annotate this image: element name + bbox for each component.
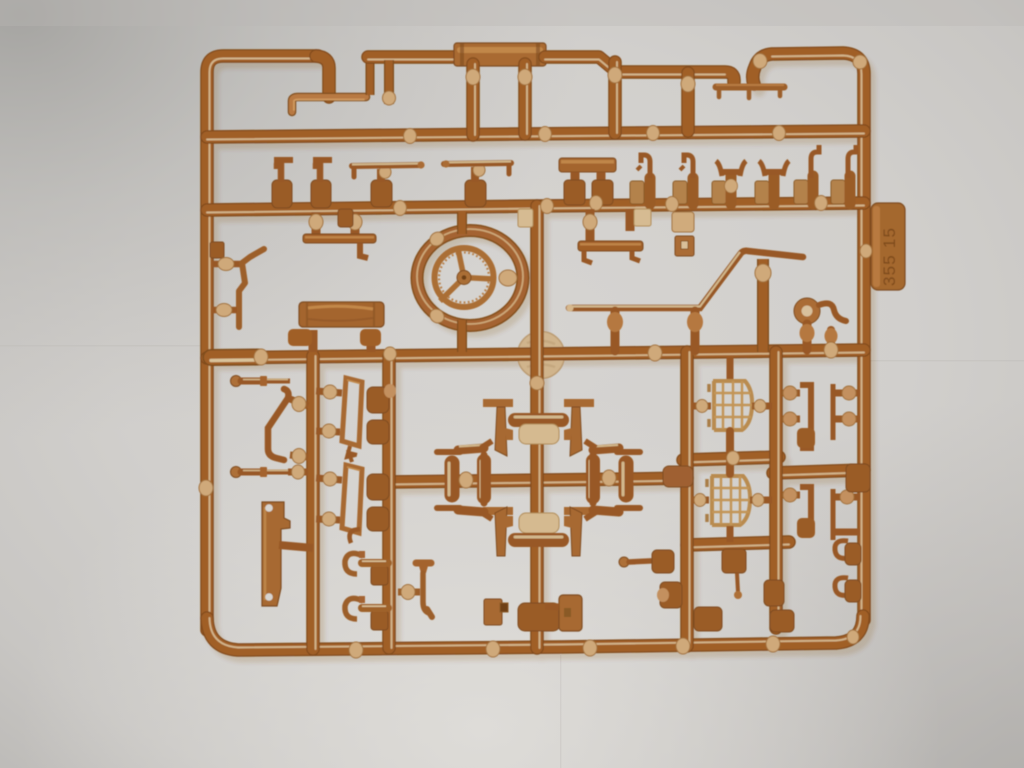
- svg-text:355 15: 355 15: [880, 227, 899, 286]
